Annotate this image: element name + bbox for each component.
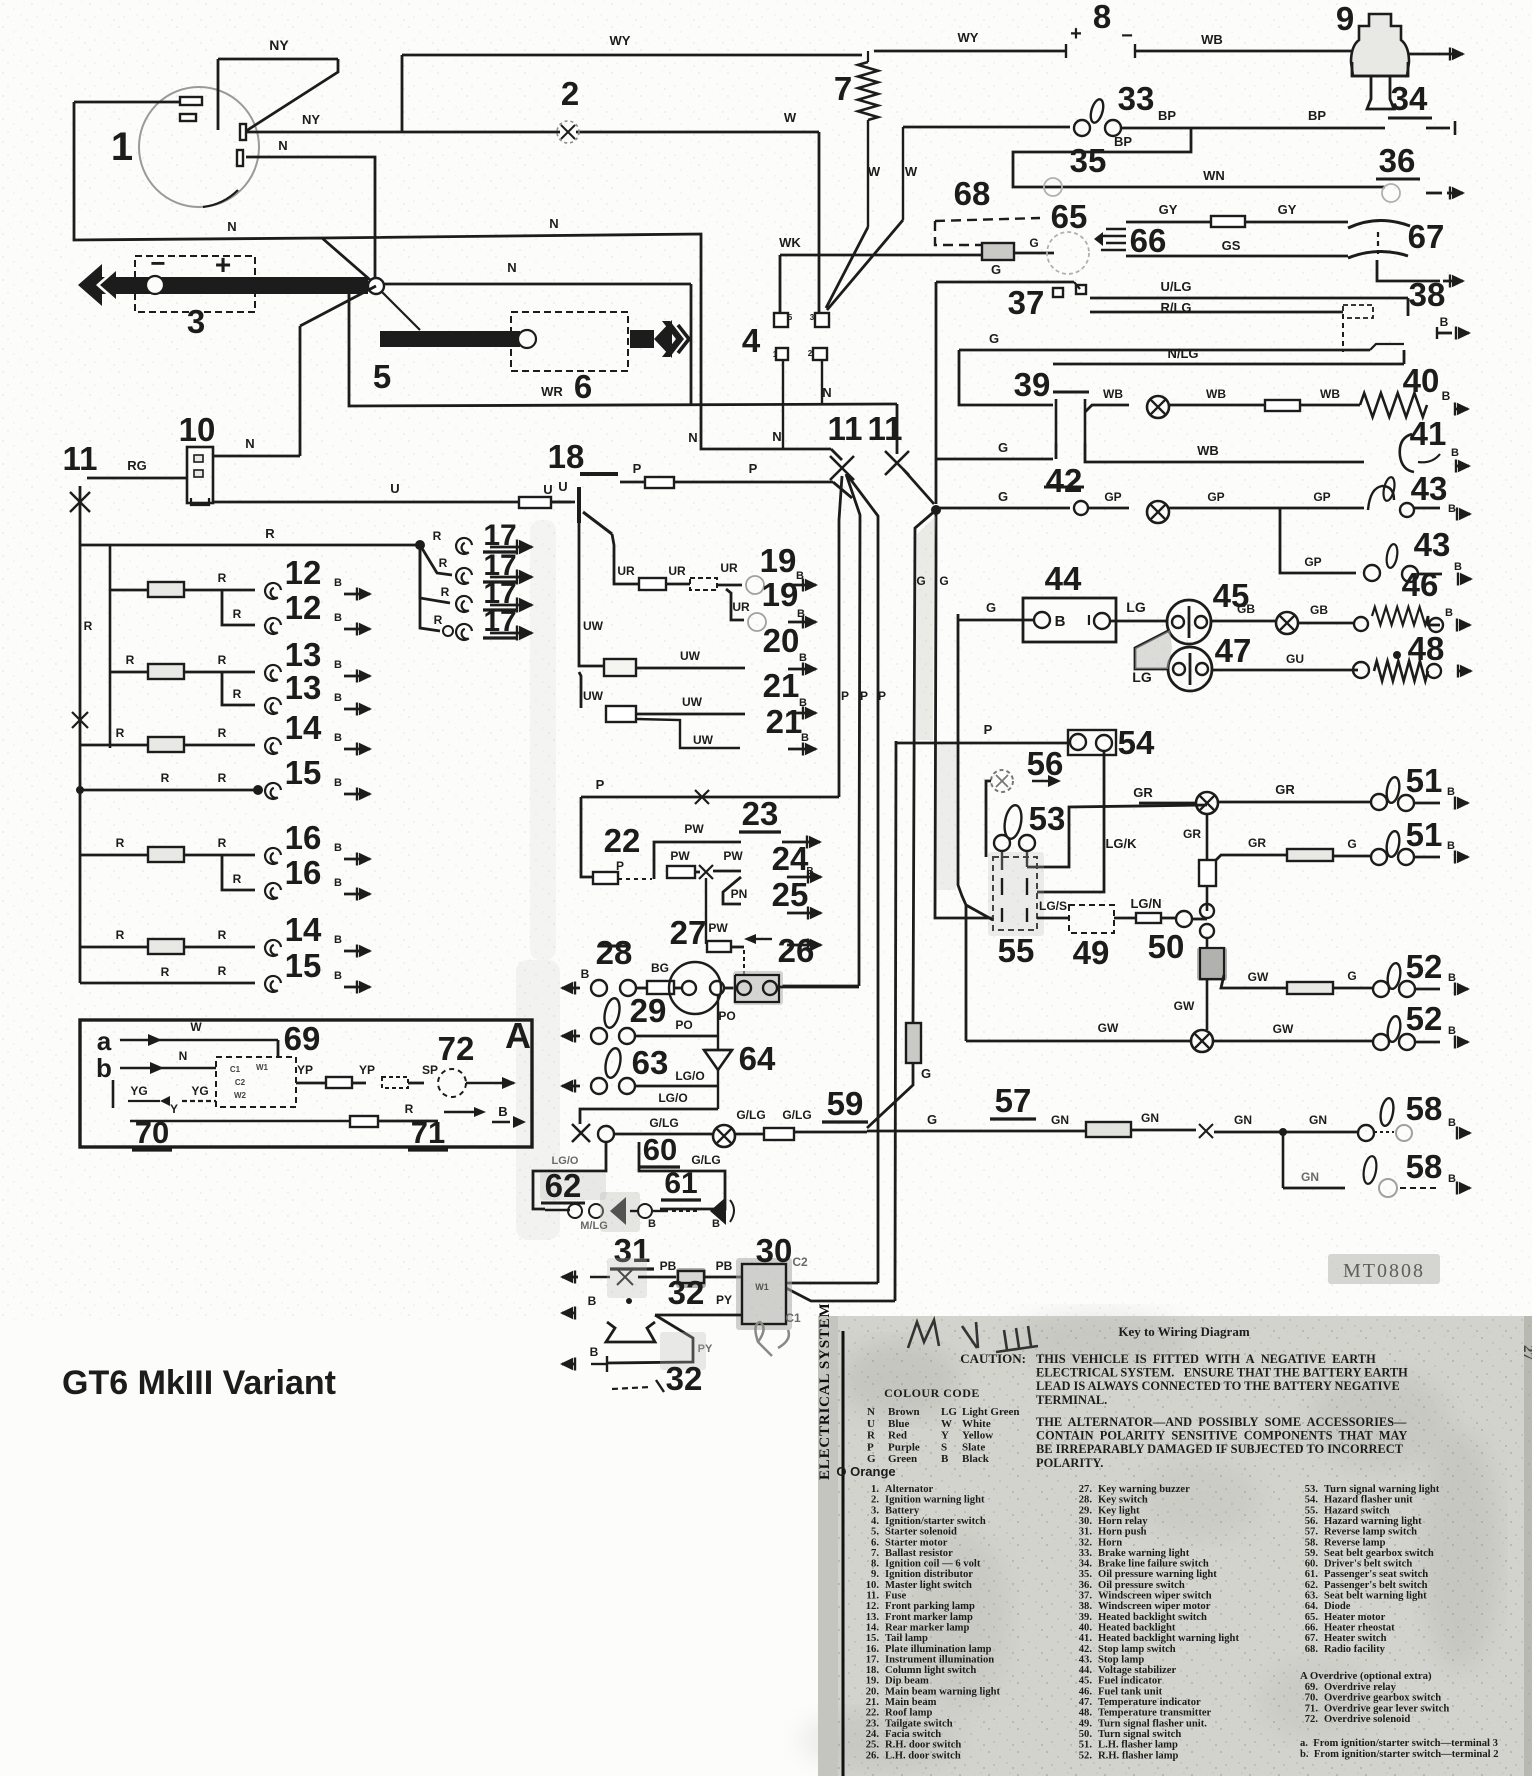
svg-text:18.: 18. [866, 1665, 880, 1676]
svg-text:Hazard warning light: Hazard warning light [1324, 1516, 1422, 1527]
svg-text:YP: YP [359, 1063, 375, 1077]
svg-text:B: B [334, 970, 342, 982]
svg-text:WB: WB [1206, 387, 1226, 401]
svg-text:GW: GW [1174, 999, 1195, 1013]
svg-text:B: B [1448, 1025, 1456, 1037]
svg-text:G: G [939, 574, 948, 588]
svg-text:38: 38 [1409, 276, 1446, 313]
svg-text:GN: GN [1301, 1170, 1319, 1184]
svg-text:LG/N: LG/N [1130, 896, 1161, 911]
svg-text:B: B [334, 732, 342, 744]
svg-text:9.: 9. [871, 1569, 879, 1580]
svg-text:G/LG: G/LG [691, 1153, 720, 1167]
svg-text:21.: 21. [866, 1697, 880, 1708]
svg-text:a: a [97, 1026, 112, 1056]
svg-text:G/LG: G/LG [649, 1116, 678, 1130]
svg-text:63: 63 [632, 1044, 669, 1081]
svg-text:Reverse lamp switch: Reverse lamp switch [1324, 1527, 1417, 1538]
svg-text:Heater switch: Heater switch [1324, 1633, 1387, 1644]
svg-text:33.: 33. [1079, 1548, 1093, 1559]
svg-text:ELECTRICAL SYSTEM. ENSURE TH: ELECTRICAL SYSTEM. ENSURE THAT THE BATTE… [1036, 1366, 1408, 1380]
svg-text:B: B [1055, 613, 1066, 630]
svg-text:I: I [1087, 612, 1091, 629]
svg-text:9: 9 [1336, 0, 1354, 37]
svg-text:26: 26 [778, 932, 815, 969]
svg-text:15: 15 [285, 947, 322, 984]
svg-text:11: 11 [63, 440, 98, 477]
svg-text:19: 19 [760, 542, 797, 579]
svg-text:6.: 6. [871, 1537, 879, 1548]
svg-text:27: 27 [670, 914, 707, 951]
svg-text:23.: 23. [866, 1718, 880, 1729]
svg-text:R: R [867, 1430, 876, 1442]
svg-text:UW: UW [680, 649, 701, 663]
svg-text:P: P [749, 461, 758, 476]
svg-text:B: B [801, 732, 809, 744]
svg-text:MT0808: MT0808 [1343, 1260, 1425, 1282]
svg-text:B: B [941, 1453, 949, 1465]
svg-text:Seat belt gearbox switch: Seat belt gearbox switch [1324, 1548, 1434, 1559]
svg-text:41.: 41. [1079, 1633, 1093, 1644]
svg-text:Rear marker lamp: Rear marker lamp [885, 1622, 969, 1633]
svg-text:R: R [265, 526, 275, 541]
svg-text:52: 52 [1406, 1000, 1443, 1037]
svg-text:G: G [998, 440, 1008, 455]
svg-text:1: 1 [773, 350, 778, 359]
svg-text:LG: LG [1132, 669, 1152, 685]
svg-text:Stop lamp switch: Stop lamp switch [1098, 1644, 1176, 1655]
svg-text:−: − [1121, 25, 1133, 47]
svg-text:B: B [590, 1345, 599, 1359]
svg-text:53.: 53. [1305, 1484, 1319, 1495]
svg-text:N: N [772, 429, 781, 444]
svg-text:GY: GY [1278, 202, 1297, 217]
svg-text:GB: GB [1237, 602, 1255, 616]
svg-text:52: 52 [1406, 948, 1443, 985]
svg-text:L.H. flasher lamp: L.H. flasher lamp [1098, 1740, 1178, 1751]
svg-text:RG: RG [127, 458, 147, 473]
svg-text:64.: 64. [1305, 1601, 1319, 1612]
svg-text:N: N [227, 219, 236, 234]
svg-text:U: U [867, 1418, 875, 1430]
svg-text:WY: WY [610, 33, 631, 48]
svg-text:B: B [498, 1104, 507, 1119]
svg-text:60.: 60. [1305, 1559, 1319, 1570]
svg-text:Brake warning light: Brake warning light [1098, 1548, 1190, 1559]
svg-text:10.: 10. [866, 1580, 880, 1591]
svg-text:34: 34 [1391, 80, 1428, 117]
svg-text:YP: YP [297, 1063, 313, 1077]
svg-text:17: 17 [483, 605, 516, 638]
svg-text:14: 14 [285, 911, 322, 948]
svg-text:49: 49 [1073, 934, 1110, 971]
svg-text:UW: UW [682, 695, 703, 709]
svg-text:G: G [1347, 969, 1356, 983]
svg-text:50.: 50. [1079, 1729, 1093, 1740]
svg-text:Horn relay: Horn relay [1098, 1516, 1148, 1527]
svg-text:Passenger's seat switch: Passenger's seat switch [1324, 1569, 1428, 1580]
svg-text:PW: PW [708, 921, 728, 935]
svg-text:3.: 3. [871, 1505, 879, 1516]
svg-text:43: 43 [1414, 526, 1451, 563]
svg-text:2.: 2. [871, 1495, 879, 1506]
svg-text:66: 66 [1130, 222, 1167, 259]
svg-text:8: 8 [1093, 0, 1111, 35]
svg-text:54.: 54. [1305, 1495, 1319, 1506]
svg-text:O Orange: O Orange [836, 1464, 895, 1479]
svg-text:M/LG: M/LG [580, 1220, 608, 1232]
svg-text:1: 1 [111, 125, 133, 169]
svg-text:15: 15 [285, 754, 322, 791]
svg-text:2: 2 [808, 349, 813, 358]
svg-text:U: U [390, 481, 399, 496]
svg-text:B: B [1448, 1173, 1456, 1185]
svg-text:Windscreen wiper motor: Windscreen wiper motor [1098, 1601, 1211, 1612]
svg-text:Alternator: Alternator [885, 1484, 934, 1495]
svg-text:Hazard flasher unit: Hazard flasher unit [1324, 1495, 1413, 1506]
svg-text:B: B [1454, 561, 1462, 573]
svg-text:10: 10 [179, 411, 216, 448]
svg-text:72: 72 [438, 1030, 475, 1067]
svg-text:YG: YG [191, 1084, 208, 1098]
svg-text:R: R [441, 585, 450, 599]
svg-text:Y: Y [941, 1430, 949, 1442]
svg-text:65.: 65. [1305, 1612, 1319, 1623]
svg-text:Battery: Battery [885, 1505, 920, 1516]
svg-text:P: P [984, 722, 993, 737]
svg-text:19: 19 [762, 576, 799, 613]
svg-text:Reverse lamp: Reverse lamp [1324, 1537, 1386, 1548]
svg-text:Turn signal warning light: Turn signal warning light [1324, 1484, 1440, 1495]
svg-text:Heater motor: Heater motor [1324, 1612, 1386, 1623]
svg-text:61.: 61. [1305, 1569, 1319, 1580]
svg-text:51: 51 [1406, 816, 1443, 853]
svg-text:R: R [126, 653, 135, 667]
svg-text:24: 24 [772, 840, 809, 877]
svg-text:58.: 58. [1305, 1537, 1319, 1548]
svg-text:GN: GN [1051, 1113, 1069, 1127]
svg-text:12: 12 [285, 589, 322, 626]
svg-text:B: B [334, 842, 342, 854]
svg-text:B: B [1448, 503, 1456, 515]
svg-text:B: B [334, 877, 342, 889]
svg-text:CONTAIN POLARITY SENSITIVE: CONTAIN POLARITY SENSITIVE COMPONENTS TH… [1036, 1429, 1407, 1443]
svg-text:18: 18 [548, 438, 585, 475]
svg-text:32: 32 [666, 1360, 703, 1397]
svg-text:Y: Y [170, 1102, 178, 1116]
svg-text:Turn signal switch: Turn signal switch [1098, 1729, 1181, 1740]
svg-text:68: 68 [954, 175, 991, 212]
svg-text:Passenger's belt switch: Passenger's belt switch [1324, 1580, 1428, 1591]
svg-text:Front parking lamp: Front parking lamp [885, 1601, 975, 1612]
svg-text:b: b [96, 1053, 112, 1083]
svg-text:GP: GP [1104, 490, 1121, 504]
svg-text:48.: 48. [1079, 1708, 1093, 1719]
svg-text:C1: C1 [230, 1065, 241, 1074]
svg-text:22: 22 [604, 822, 641, 859]
svg-text:UW: UW [583, 689, 604, 703]
svg-text:Hazard switch: Hazard switch [1324, 1505, 1390, 1516]
svg-text:R: R [218, 771, 227, 785]
svg-text:G: G [927, 1112, 937, 1127]
svg-text:57: 57 [995, 1082, 1032, 1119]
svg-text:UW: UW [583, 619, 604, 633]
svg-text:Starter solenoid: Starter solenoid [885, 1527, 957, 1538]
svg-text:R: R [218, 928, 227, 942]
svg-text:GW: GW [1098, 1021, 1119, 1035]
svg-text:W: W [190, 1020, 202, 1034]
svg-text:N: N [549, 216, 558, 231]
svg-text:P: P [867, 1441, 874, 1453]
svg-text:28: 28 [596, 934, 633, 971]
svg-text:46: 46 [1402, 566, 1439, 603]
svg-text:CAUTION:: CAUTION: [960, 1351, 1026, 1366]
svg-text:Brake line failure switch: Brake line failure switch [1098, 1559, 1209, 1570]
svg-text:G: G [991, 262, 1001, 277]
svg-text:GR: GR [1248, 836, 1266, 850]
svg-text:59.: 59. [1305, 1548, 1319, 1559]
svg-text:Radio facility: Radio facility [1324, 1644, 1386, 1655]
svg-text:Ignition/starter switch: Ignition/starter switch [885, 1516, 986, 1527]
svg-text:LG: LG [1126, 599, 1146, 615]
svg-text:Ignition distributor: Ignition distributor [885, 1569, 973, 1580]
svg-text:GN: GN [1234, 1113, 1252, 1127]
svg-text:47.: 47. [1079, 1697, 1093, 1708]
svg-text:U/LG: U/LG [1160, 279, 1191, 294]
svg-text:69.: 69. [1305, 1682, 1319, 1693]
svg-text:43: 43 [1411, 470, 1448, 507]
svg-text:Main beam warning light: Main beam warning light [885, 1686, 1001, 1697]
svg-text:26.: 26. [866, 1750, 880, 1761]
svg-text:UR: UR [720, 561, 738, 575]
svg-text:Horn: Horn [1098, 1537, 1122, 1548]
svg-text:LG/K: LG/K [1105, 836, 1137, 851]
svg-text:25.: 25. [866, 1740, 880, 1751]
svg-text:PB: PB [716, 1259, 733, 1273]
svg-text:24.: 24. [866, 1729, 880, 1740]
svg-text:WB: WB [1320, 387, 1340, 401]
svg-text:N: N [278, 138, 287, 153]
svg-text:R.H. flasher lamp: R.H. flasher lamp [1098, 1750, 1179, 1761]
svg-text:Column light switch: Column light switch [885, 1665, 976, 1676]
svg-text:17.: 17. [866, 1654, 880, 1665]
svg-text:3: 3 [187, 303, 205, 340]
svg-text:R: R [405, 1102, 414, 1116]
svg-text:Ignition warning light: Ignition warning light [885, 1495, 985, 1506]
svg-text:COLOUR CODE: COLOUR CODE [884, 1386, 980, 1400]
svg-text:Plate illumination lamp: Plate illumination lamp [885, 1644, 992, 1655]
svg-text:58: 58 [1406, 1090, 1443, 1127]
svg-text:Blue: Blue [888, 1418, 910, 1430]
svg-text:60: 60 [643, 1132, 677, 1167]
svg-text:WK: WK [779, 235, 801, 250]
svg-text:G: G [921, 1066, 931, 1081]
svg-text:Overdrive gear lever switch: Overdrive gear lever switch [1324, 1703, 1449, 1714]
svg-text:R: R [233, 607, 242, 621]
svg-text:13: 13 [285, 636, 322, 673]
svg-text:39.: 39. [1079, 1612, 1093, 1623]
svg-text:B: B [334, 934, 342, 946]
svg-text:N: N [179, 1049, 188, 1063]
svg-text:Temperature transmitter: Temperature transmitter [1098, 1708, 1212, 1719]
svg-text:Horn push: Horn push [1098, 1527, 1147, 1538]
svg-text:GN: GN [1309, 1113, 1327, 1127]
svg-text:S: S [941, 1441, 947, 1453]
svg-text:Overdrive solenoid: Overdrive solenoid [1324, 1714, 1410, 1725]
svg-text:L.H. door switch: L.H. door switch [885, 1750, 961, 1761]
svg-text:WB: WB [1201, 32, 1223, 47]
svg-text:G: G [1029, 236, 1038, 250]
svg-text:12.: 12. [866, 1601, 880, 1612]
svg-text:GR: GR [1183, 827, 1201, 841]
svg-text:Ballast resistor: Ballast resistor [885, 1548, 953, 1559]
svg-text:White: White [962, 1418, 991, 1430]
svg-text:PW: PW [670, 849, 690, 863]
svg-text:Yellow: Yellow [962, 1430, 993, 1442]
svg-text:59: 59 [827, 1085, 864, 1122]
svg-text:21: 21 [766, 703, 803, 740]
svg-text:G: G [916, 574, 925, 588]
svg-text:19.: 19. [866, 1676, 880, 1687]
svg-text:5: 5 [373, 358, 391, 395]
svg-text:Key switch: Key switch [1098, 1495, 1148, 1506]
svg-text:14: 14 [285, 709, 322, 746]
svg-text:A: A [505, 1015, 531, 1056]
svg-text:Diode: Diode [1324, 1601, 1351, 1612]
svg-text:35.: 35. [1079, 1569, 1093, 1580]
svg-text:N: N [867, 1406, 875, 1418]
svg-text:Stop lamp: Stop lamp [1098, 1654, 1144, 1665]
svg-text:Main beam: Main beam [885, 1697, 937, 1708]
svg-text:W1: W1 [256, 1063, 269, 1072]
svg-text:GU: GU [1286, 652, 1304, 666]
svg-text:NY: NY [302, 112, 320, 127]
svg-text:LG/S: LG/S [1039, 899, 1067, 913]
svg-text:Fuel indicator: Fuel indicator [1098, 1676, 1162, 1687]
svg-text:37.: 37. [1079, 1591, 1093, 1602]
svg-text:B: B [1447, 840, 1455, 852]
svg-text:B: B [1451, 447, 1459, 459]
svg-text:BP: BP [1308, 108, 1326, 123]
svg-text:P: P [616, 859, 624, 873]
svg-text:Starter motor: Starter motor [885, 1537, 948, 1548]
svg-text:PW: PW [723, 849, 743, 863]
svg-text:23: 23 [742, 795, 779, 832]
svg-text:N: N [507, 260, 516, 275]
svg-text:Key warning buzzer: Key warning buzzer [1098, 1484, 1190, 1495]
svg-text:40.: 40. [1079, 1622, 1093, 1633]
svg-text:G/LG: G/LG [782, 1108, 811, 1122]
svg-text:Brown: Brown [888, 1406, 920, 1418]
svg-text:Heater rheostat: Heater rheostat [1324, 1622, 1395, 1633]
svg-text:R: R [218, 571, 227, 585]
svg-text:70.: 70. [1305, 1693, 1319, 1704]
svg-text:27.: 27. [1079, 1484, 1093, 1495]
svg-text:13.: 13. [866, 1612, 880, 1623]
svg-text:Heated backlight warning light: Heated backlight warning light [1098, 1633, 1239, 1644]
svg-text:R.H. door switch: R.H. door switch [885, 1740, 961, 1751]
svg-text:17: 17 [483, 519, 516, 552]
svg-text:20: 20 [763, 622, 800, 659]
svg-text:W: W [784, 110, 797, 125]
svg-text:UR: UR [732, 600, 750, 614]
svg-text:+: + [215, 249, 231, 280]
svg-text:R: R [439, 556, 448, 570]
svg-text:BE IRREPARABLY DAMAGED IF SUBJ: BE IRREPARABLY DAMAGED IF SUBJECTED TO I… [1036, 1442, 1404, 1456]
svg-text:GW: GW [1273, 1022, 1294, 1036]
svg-text:16.: 16. [866, 1644, 880, 1655]
svg-text:40: 40 [1403, 362, 1440, 399]
svg-text:Key light: Key light [1098, 1505, 1140, 1516]
svg-text:THIS VEHICLE IS FITTED WIT: THIS VEHICLE IS FITTED WITH A NEGATIVE E… [1036, 1352, 1376, 1366]
svg-text:R: R [218, 653, 227, 667]
svg-text:B: B [1442, 389, 1451, 403]
svg-text:66.: 66. [1305, 1622, 1319, 1633]
svg-text:GS: GS [1222, 238, 1241, 253]
svg-text:R: R [233, 872, 242, 886]
svg-text:41: 41 [1410, 415, 1447, 452]
svg-text:44: 44 [1045, 560, 1082, 597]
svg-text:THE ALTERNATOR—AND POSSIBLY: THE ALTERNATOR—AND POSSIBLY SOME ACCESSO… [1036, 1415, 1407, 1429]
svg-text:Dip beam: Dip beam [885, 1676, 929, 1687]
svg-text:51.: 51. [1079, 1740, 1093, 1751]
svg-text:b. From ignition/starter swit: b. From ignition/starter switch—terminal… [1300, 1749, 1499, 1760]
svg-text:G: G [989, 331, 999, 346]
svg-text:B: B [334, 577, 342, 589]
svg-text:28.: 28. [1079, 1495, 1093, 1506]
svg-text:R: R [433, 529, 442, 543]
svg-text:31.: 31. [1079, 1527, 1093, 1538]
svg-text:37: 37 [1008, 284, 1045, 321]
svg-text:C1: C1 [785, 1311, 801, 1325]
svg-text:B: B [648, 1218, 656, 1230]
svg-text:SP: SP [422, 1063, 438, 1077]
svg-text:11: 11 [828, 410, 863, 447]
svg-text:49.: 49. [1079, 1718, 1093, 1729]
svg-text:PO: PO [718, 1009, 735, 1023]
svg-text:P: P [878, 689, 886, 703]
svg-text:B: B [334, 777, 342, 789]
svg-text:25: 25 [772, 876, 809, 913]
svg-text:20.: 20. [866, 1686, 880, 1697]
svg-text:W1: W1 [755, 1282, 769, 1292]
svg-text:LG/O: LG/O [552, 1155, 579, 1167]
svg-text:B: B [334, 692, 342, 704]
svg-text:55.: 55. [1305, 1505, 1319, 1516]
svg-text:GP: GP [1207, 490, 1224, 504]
svg-text:Purple: Purple [888, 1441, 920, 1453]
svg-text:LG: LG [941, 1406, 957, 1418]
svg-text:PO: PO [675, 1018, 692, 1032]
svg-text:Fuel tank unit: Fuel tank unit [1098, 1686, 1163, 1697]
svg-text:58: 58 [1406, 1148, 1443, 1185]
svg-text:LEAD IS ALWAYS CONNECTED TO TH: LEAD IS ALWAYS CONNECTED TO THE BATTERY … [1036, 1379, 1400, 1393]
svg-text:G: G [998, 489, 1008, 504]
svg-text:39: 39 [1014, 366, 1051, 403]
svg-text:Overdrive gearbox switch: Overdrive gearbox switch [1324, 1693, 1441, 1704]
svg-text:2: 2 [561, 75, 579, 112]
svg-text:61: 61 [664, 1167, 697, 1200]
svg-text:52.: 52. [1079, 1750, 1093, 1761]
svg-text:55: 55 [998, 932, 1035, 969]
svg-text:56.: 56. [1305, 1516, 1319, 1527]
svg-text:Turn signal flasher unit.: Turn signal flasher unit. [1098, 1718, 1207, 1729]
svg-text:32.: 32. [1079, 1537, 1093, 1548]
svg-text:LG/O: LG/O [675, 1069, 704, 1083]
svg-text:WB: WB [1197, 443, 1219, 458]
svg-text:W: W [868, 164, 881, 179]
svg-text:WN: WN [1203, 168, 1225, 183]
